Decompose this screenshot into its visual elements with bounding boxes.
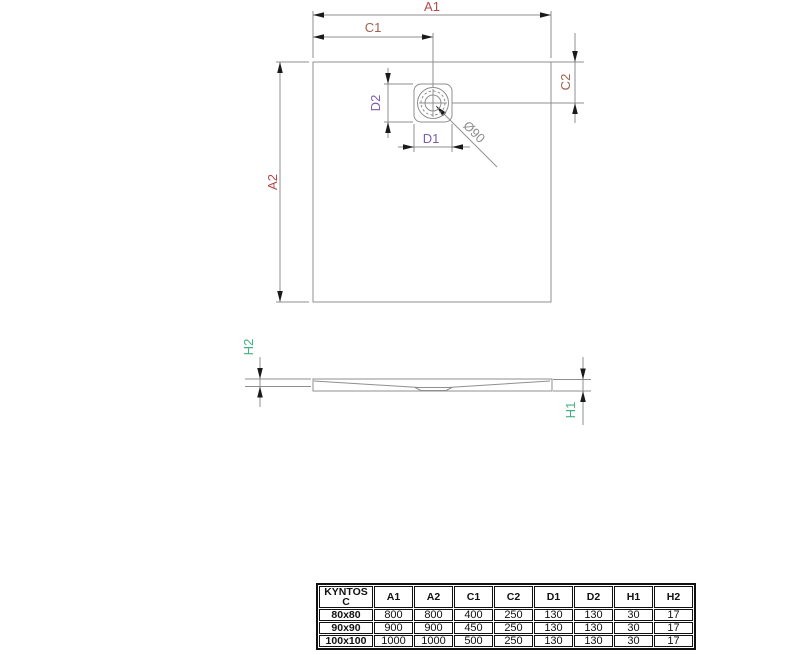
value-cell: 450 bbox=[454, 622, 493, 634]
value-cell: 500 bbox=[454, 635, 493, 647]
value-cell: 30 bbox=[614, 635, 653, 647]
dim-label-c1: C1 bbox=[365, 20, 382, 35]
dim-label-a2: A2 bbox=[265, 174, 280, 190]
dim-label-c2: C2 bbox=[558, 74, 573, 91]
value-cell: 17 bbox=[654, 622, 693, 634]
spec-table-title: KYNTOS C bbox=[319, 586, 373, 608]
value-cell: 130 bbox=[574, 609, 613, 621]
spec-header-h1: H1 bbox=[614, 586, 653, 608]
tray-outline bbox=[313, 62, 551, 302]
spec-header-h2: H2 bbox=[654, 586, 693, 608]
spec-header-d1: D1 bbox=[534, 586, 573, 608]
value-cell: 30 bbox=[614, 622, 653, 634]
technical-drawing: A1 C1 A2 C2 D2 D1 Ø90 bbox=[0, 0, 800, 650]
value-cell: 1000 bbox=[414, 635, 453, 647]
profile-dimension-arrows bbox=[257, 368, 586, 402]
spec-header-c1: C1 bbox=[454, 586, 493, 608]
value-cell: 130 bbox=[574, 622, 613, 634]
spec-header-a2: A2 bbox=[414, 586, 453, 608]
plan-view: A1 C1 A2 C2 D2 D1 Ø90 bbox=[265, 0, 584, 302]
value-cell: 130 bbox=[534, 622, 573, 634]
value-cell: 17 bbox=[654, 635, 693, 647]
value-cell: 130 bbox=[534, 635, 573, 647]
value-cell: 400 bbox=[454, 609, 493, 621]
value-cell: 250 bbox=[494, 635, 533, 647]
value-cell: 900 bbox=[374, 622, 413, 634]
value-cell: 130 bbox=[534, 609, 573, 621]
dim-label-h2: H2 bbox=[241, 339, 256, 356]
value-cell: 900 bbox=[414, 622, 453, 634]
model-cell: 100x100 bbox=[319, 635, 373, 647]
spec-table: KYNTOS C A1 A2 C1 C2 D1 D2 H1 H2 80x80 8… bbox=[316, 583, 696, 650]
plan-dimension-arrows bbox=[277, 12, 578, 302]
value-cell: 30 bbox=[614, 609, 653, 621]
model-cell: 80x80 bbox=[319, 609, 373, 621]
value-cell: 1000 bbox=[374, 635, 413, 647]
dim-label-h1: H1 bbox=[563, 402, 578, 419]
dim-label-d2: D2 bbox=[368, 95, 383, 112]
value-cell: 130 bbox=[574, 635, 613, 647]
profile-surface-lines bbox=[314, 381, 550, 391]
spec-header-d2: D2 bbox=[574, 586, 613, 608]
profile-outline bbox=[313, 379, 552, 391]
drain-diameter-label: Ø90 bbox=[460, 118, 488, 146]
value-cell: 800 bbox=[414, 609, 453, 621]
spec-row-80x80: 80x80 800 800 400 250 130 130 30 17 bbox=[319, 609, 693, 621]
spec-header-row: KYNTOS C A1 A2 C1 C2 D1 D2 H1 H2 bbox=[319, 586, 693, 608]
spec-header-c2: C2 bbox=[494, 586, 533, 608]
spec-header-a1: A1 bbox=[374, 586, 413, 608]
model-cell: 90x90 bbox=[319, 622, 373, 634]
spec-row-100x100: 100x100 1000 1000 500 250 130 130 30 17 bbox=[319, 635, 693, 647]
spec-row-90x90: 90x90 900 900 450 250 130 130 30 17 bbox=[319, 622, 693, 634]
value-cell: 250 bbox=[494, 622, 533, 634]
dim-label-d1: D1 bbox=[423, 131, 440, 146]
profile-view: H2 H1 bbox=[241, 339, 591, 425]
value-cell: 800 bbox=[374, 609, 413, 621]
value-cell: 250 bbox=[494, 609, 533, 621]
dim-label-a1: A1 bbox=[424, 0, 440, 14]
value-cell: 17 bbox=[654, 609, 693, 621]
plan-dimension-lines bbox=[276, 11, 584, 302]
